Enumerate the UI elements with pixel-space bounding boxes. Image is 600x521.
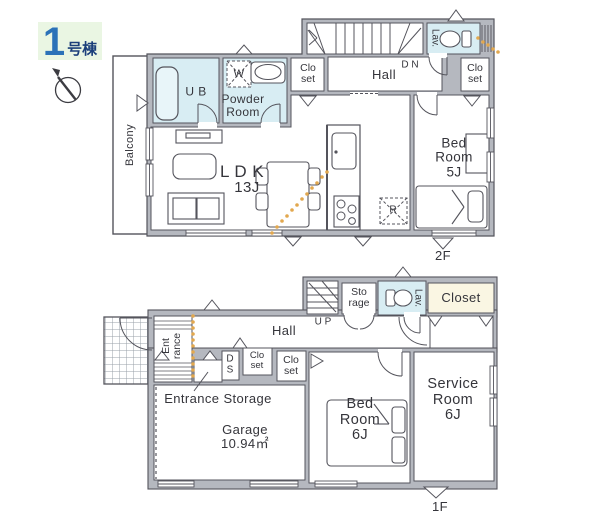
kitchen-counter bbox=[327, 125, 360, 230]
toilet-icon-2f bbox=[440, 31, 471, 47]
label-garage-area: 10.94㎡ bbox=[221, 437, 269, 451]
label-powder-room: Powder Room bbox=[203, 93, 283, 119]
label-fridge: R bbox=[389, 206, 396, 217]
floor2-plan bbox=[113, 10, 500, 249]
label-ldk-size: 13J bbox=[234, 180, 259, 196]
label-closet-a: Clo set bbox=[250, 351, 264, 371]
stairwell-2f bbox=[307, 23, 423, 54]
porch bbox=[104, 317, 152, 384]
entrance-storage-area bbox=[194, 360, 222, 382]
label-ds: D S bbox=[226, 354, 233, 375]
label-closet-left-2f: Clo set bbox=[300, 63, 316, 85]
label-bedroom-6j: Bed Room 6J bbox=[340, 397, 380, 444]
label-up: U P bbox=[315, 318, 332, 329]
label-hall-2f: Hall bbox=[372, 68, 396, 82]
label-washer: W bbox=[234, 69, 245, 81]
label-lav-2f: Lav. bbox=[429, 29, 440, 47]
label-closet-top: Closet bbox=[441, 291, 480, 305]
label-garage: Garage bbox=[222, 423, 268, 437]
label-floor2: 2F bbox=[435, 249, 451, 263]
toilet-icon-1f bbox=[386, 290, 412, 306]
label-service-room: Service Room 6J bbox=[427, 377, 478, 424]
label-bedroom-5j: Bed Room 5J bbox=[435, 136, 473, 179]
label-entrance-storage: Entrance Storage bbox=[148, 392, 288, 406]
table-icon bbox=[173, 154, 216, 179]
label-closet-b: Clo set bbox=[283, 355, 299, 377]
label-lav-1f: Lav. bbox=[412, 289, 423, 307]
label-balcony: Balcony bbox=[125, 124, 137, 166]
floorplan-page: 1 号棟 bbox=[0, 0, 600, 521]
label-entrance: Ent rance bbox=[161, 333, 183, 359]
label-dn: D N bbox=[401, 61, 418, 72]
label-closet-right-2f: Clo set bbox=[467, 63, 483, 85]
sink-icon-powder bbox=[251, 62, 285, 83]
label-floor1: 1F bbox=[432, 500, 448, 514]
compass-icon bbox=[52, 68, 81, 103]
bathtub-icon bbox=[156, 67, 178, 120]
label-storage: Sto rage bbox=[348, 287, 369, 309]
label-hall-1f: Hall bbox=[272, 324, 296, 338]
